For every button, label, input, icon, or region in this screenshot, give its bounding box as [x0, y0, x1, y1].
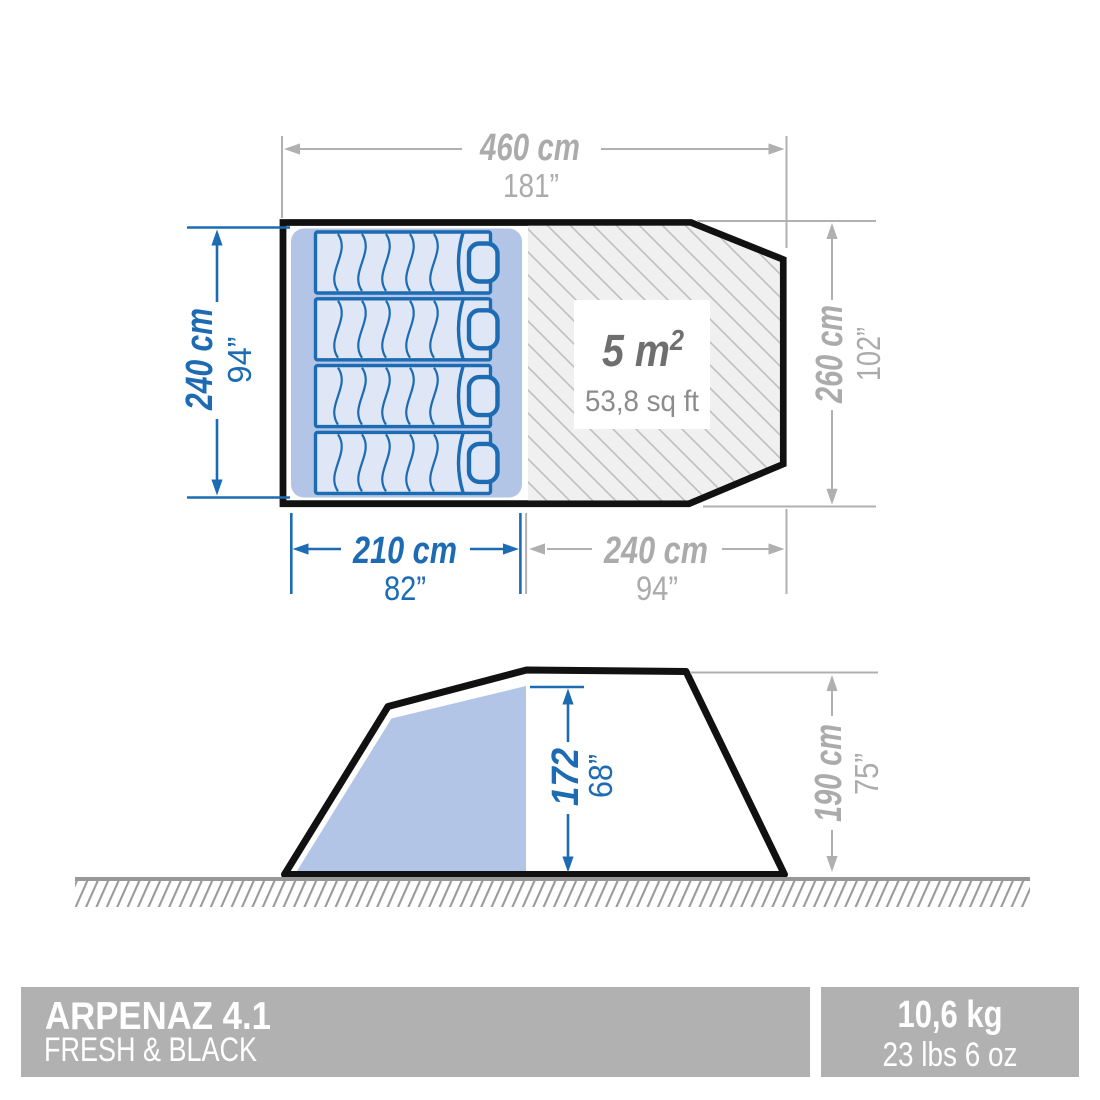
svg-text:240 cm: 240 cm — [179, 308, 221, 411]
svg-text:75”: 75” — [848, 753, 885, 795]
svg-text:460 cm: 460 cm — [479, 127, 580, 169]
svg-text:240 cm: 240 cm — [603, 530, 708, 572]
svg-text:260 cm: 260 cm — [809, 305, 851, 404]
svg-text:210 cm: 210 cm — [352, 530, 457, 572]
svg-text:94”: 94” — [221, 337, 258, 384]
svg-text:94”: 94” — [636, 570, 678, 608]
svg-text:68”: 68” — [582, 754, 619, 798]
svg-text:172: 172 — [545, 748, 587, 806]
svg-text:181”: 181” — [503, 167, 559, 204]
svg-text:10,6 kg: 10,6 kg — [898, 994, 1003, 1036]
svg-text:FRESH & BLACK: FRESH & BLACK — [44, 1031, 257, 1069]
svg-text:82”: 82” — [384, 570, 426, 608]
svg-text:23 lbs 6 oz: 23 lbs 6 oz — [883, 1036, 1018, 1074]
svg-text:102”: 102” — [850, 327, 887, 381]
svg-text:53,8 sq ft: 53,8 sq ft — [585, 385, 700, 418]
svg-text:190 cm: 190 cm — [808, 724, 850, 822]
